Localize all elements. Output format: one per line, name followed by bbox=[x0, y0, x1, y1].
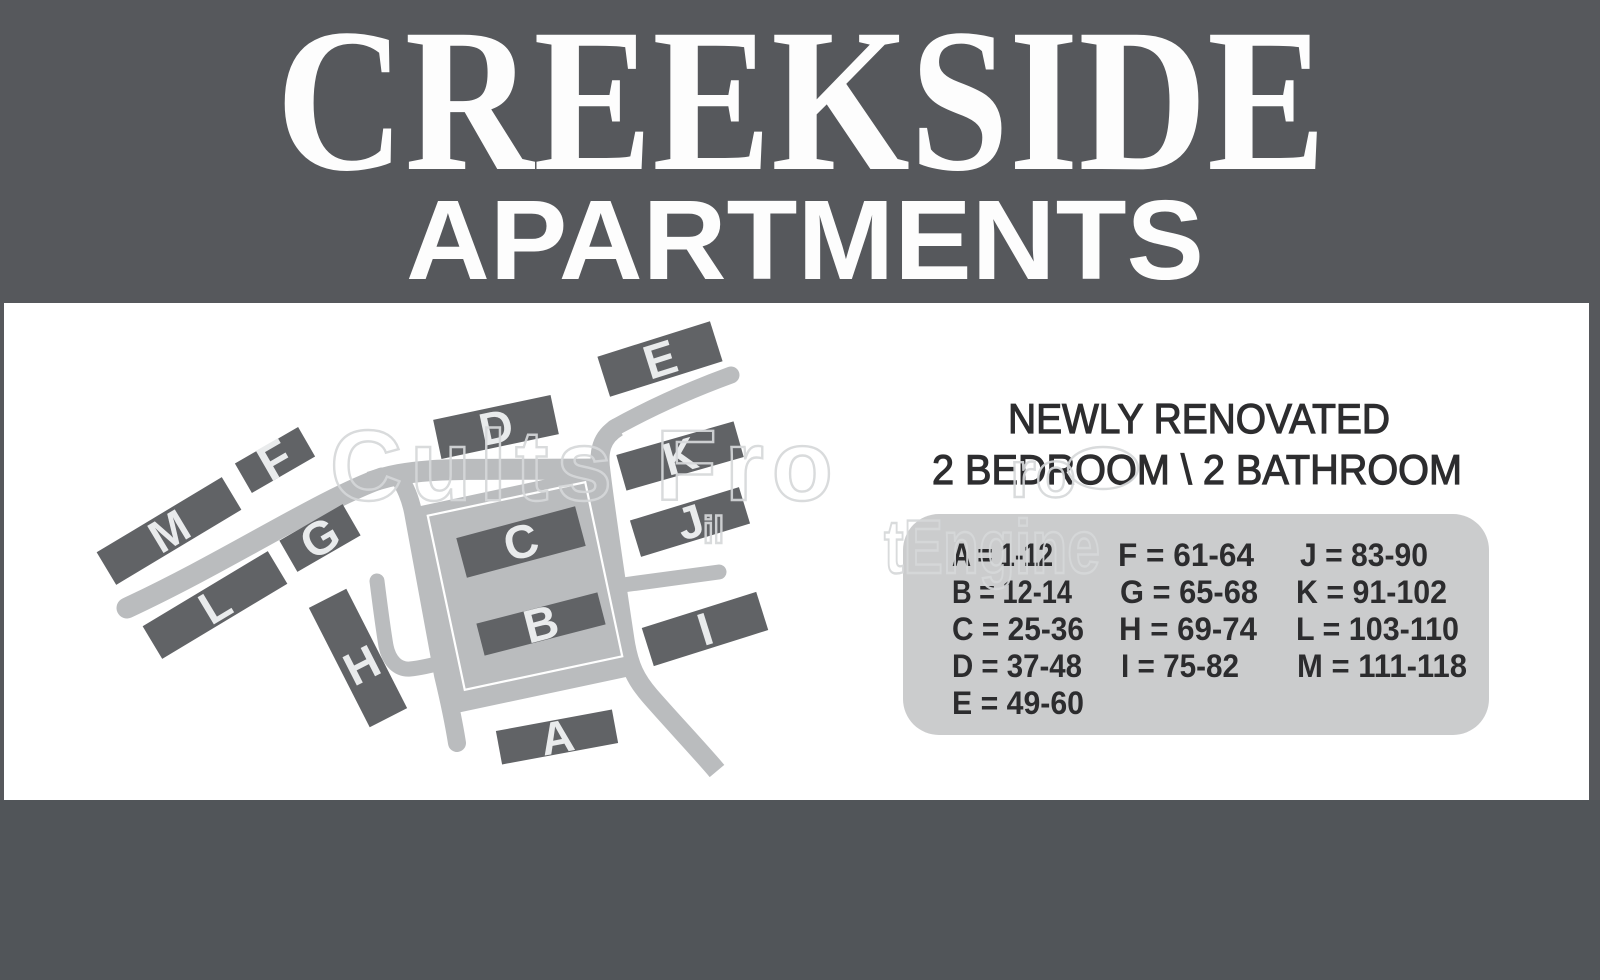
svg-text:APARTMENTS: APARTMENTS bbox=[406, 177, 1204, 303]
svg-text:il: il bbox=[703, 510, 724, 552]
svg-text:G = 65-68: G = 65-68 bbox=[1120, 574, 1258, 610]
svg-text:J = 83-90: J = 83-90 bbox=[1300, 537, 1428, 573]
svg-text:Cults Fro: Cults Fro bbox=[330, 410, 841, 522]
svg-text:F = 61-64: F = 61-64 bbox=[1118, 537, 1254, 573]
svg-text:H = 69-74: H = 69-74 bbox=[1119, 611, 1257, 647]
svg-text:E = 49-60: E = 49-60 bbox=[952, 685, 1084, 721]
svg-text:I = 75-82: I = 75-82 bbox=[1121, 648, 1239, 684]
svg-text:tEngine: tEngine bbox=[884, 505, 1100, 590]
svg-text:D = 37-48: D = 37-48 bbox=[952, 648, 1082, 684]
svg-text:C = 25-36: C = 25-36 bbox=[952, 611, 1084, 647]
svg-text:K = 91-102: K = 91-102 bbox=[1296, 574, 1447, 610]
svg-text:M = 111-118: M = 111-118 bbox=[1297, 648, 1467, 684]
svg-text:ro: ro bbox=[1010, 437, 1076, 511]
svg-text:NEWLY RENOVATED: NEWLY RENOVATED bbox=[1008, 395, 1390, 442]
svg-text:L = 103-110: L = 103-110 bbox=[1296, 611, 1459, 647]
